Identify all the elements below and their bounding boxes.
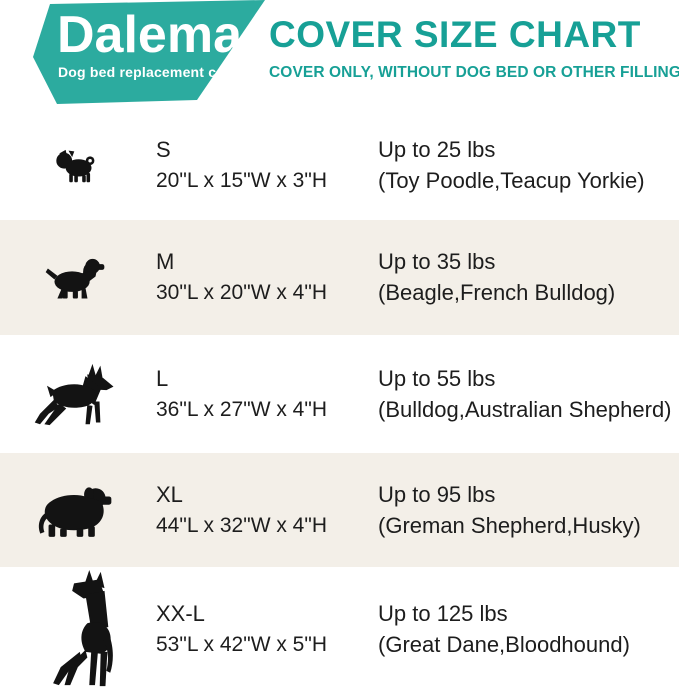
breeds-label: (Great Dane,Bloodhound) [378, 631, 679, 659]
size-chart: Dalema Dog bed replacement cover COVER S… [0, 0, 679, 691]
dimensions-label: 20"L x 15"W x 3"H [156, 167, 378, 195]
size-label: L [156, 365, 378, 393]
info-cell: Up to 125 lbs (Great Dane,Bloodhound) [378, 600, 679, 659]
weight-label: Up to 25 lbs [378, 136, 679, 164]
size-label: XX-L [156, 600, 378, 628]
size-label: S [156, 136, 378, 164]
chart-header: Dalema Dog bed replacement cover COVER S… [0, 0, 679, 110]
info-cell: Up to 55 lbs (Bulldog,Australian Shepher… [378, 365, 679, 424]
size-label: XL [156, 481, 378, 509]
doberman-icon [33, 363, 117, 426]
pug-icon [52, 147, 98, 183]
size-row-xl: XL 44"L x 32"W x 4"H Up to 95 lbs (Grema… [0, 453, 679, 567]
dimensions-label: 30"L x 20"W x 4"H [156, 279, 378, 307]
great-dane-icon [32, 570, 118, 688]
size-row-xxl: XX-L 53"L x 42"W x 5"H Up to 125 lbs (Gr… [0, 567, 679, 691]
page-subtitle: COVER ONLY, WITHOUT DOG BED OR OTHER FIL… [269, 64, 679, 82]
icon-cell [0, 570, 150, 688]
spaniel-icon [44, 256, 106, 300]
breeds-label: (Toy Poodle,Teacup Yorkie) [378, 167, 679, 195]
size-label: M [156, 248, 378, 276]
breeds-label: (Beagle,French Bulldog) [378, 279, 679, 307]
dimensions-label: 53"L x 42"W x 5"H [156, 631, 378, 659]
dimensions-label: 44"L x 32"W x 4"H [156, 512, 378, 540]
weight-label: Up to 55 lbs [378, 365, 679, 393]
title-block: COVER SIZE CHART COVER ONLY, WITHOUT DOG… [269, 14, 679, 82]
info-cell: Up to 95 lbs (Greman Shepherd,Husky) [378, 481, 679, 540]
weight-label: Up to 125 lbs [378, 600, 679, 628]
size-cell: S 20"L x 15"W x 3"H [150, 136, 378, 195]
weight-label: Up to 35 lbs [378, 248, 679, 276]
breeds-label: (Greman Shepherd,Husky) [378, 512, 679, 540]
info-cell: Up to 35 lbs (Beagle,French Bulldog) [378, 248, 679, 307]
dimensions-label: 36"L x 27"W x 4"H [156, 396, 378, 424]
weight-label: Up to 95 lbs [378, 481, 679, 509]
icon-cell [0, 363, 150, 426]
brand-name: Dalema [57, 5, 242, 65]
size-cell: XL 44"L x 32"W x 4"H [150, 481, 378, 540]
size-row-l: L 36"L x 27"W x 4"H Up to 55 lbs (Bulldo… [0, 335, 679, 453]
info-cell: Up to 25 lbs (Toy Poodle,Teacup Yorkie) [378, 136, 679, 195]
icon-cell [0, 147, 150, 183]
size-cell: M 30"L x 20"W x 4"H [150, 248, 378, 307]
size-cell: L 36"L x 27"W x 4"H [150, 365, 378, 424]
breeds-label: (Bulldog,Australian Shepherd) [378, 396, 679, 424]
bernese-icon [37, 484, 113, 537]
size-cell: XX-L 53"L x 42"W x 5"H [150, 600, 378, 659]
size-row-m: M 30"L x 20"W x 4"H Up to 35 lbs (Beagle… [0, 220, 679, 335]
icon-cell [0, 256, 150, 300]
size-row-s: S 20"L x 15"W x 3"H Up to 25 lbs (Toy Po… [0, 110, 679, 220]
brand-tagline: Dog bed replacement cover [58, 64, 247, 80]
icon-cell [0, 484, 150, 537]
page-title: COVER SIZE CHART [269, 14, 679, 56]
